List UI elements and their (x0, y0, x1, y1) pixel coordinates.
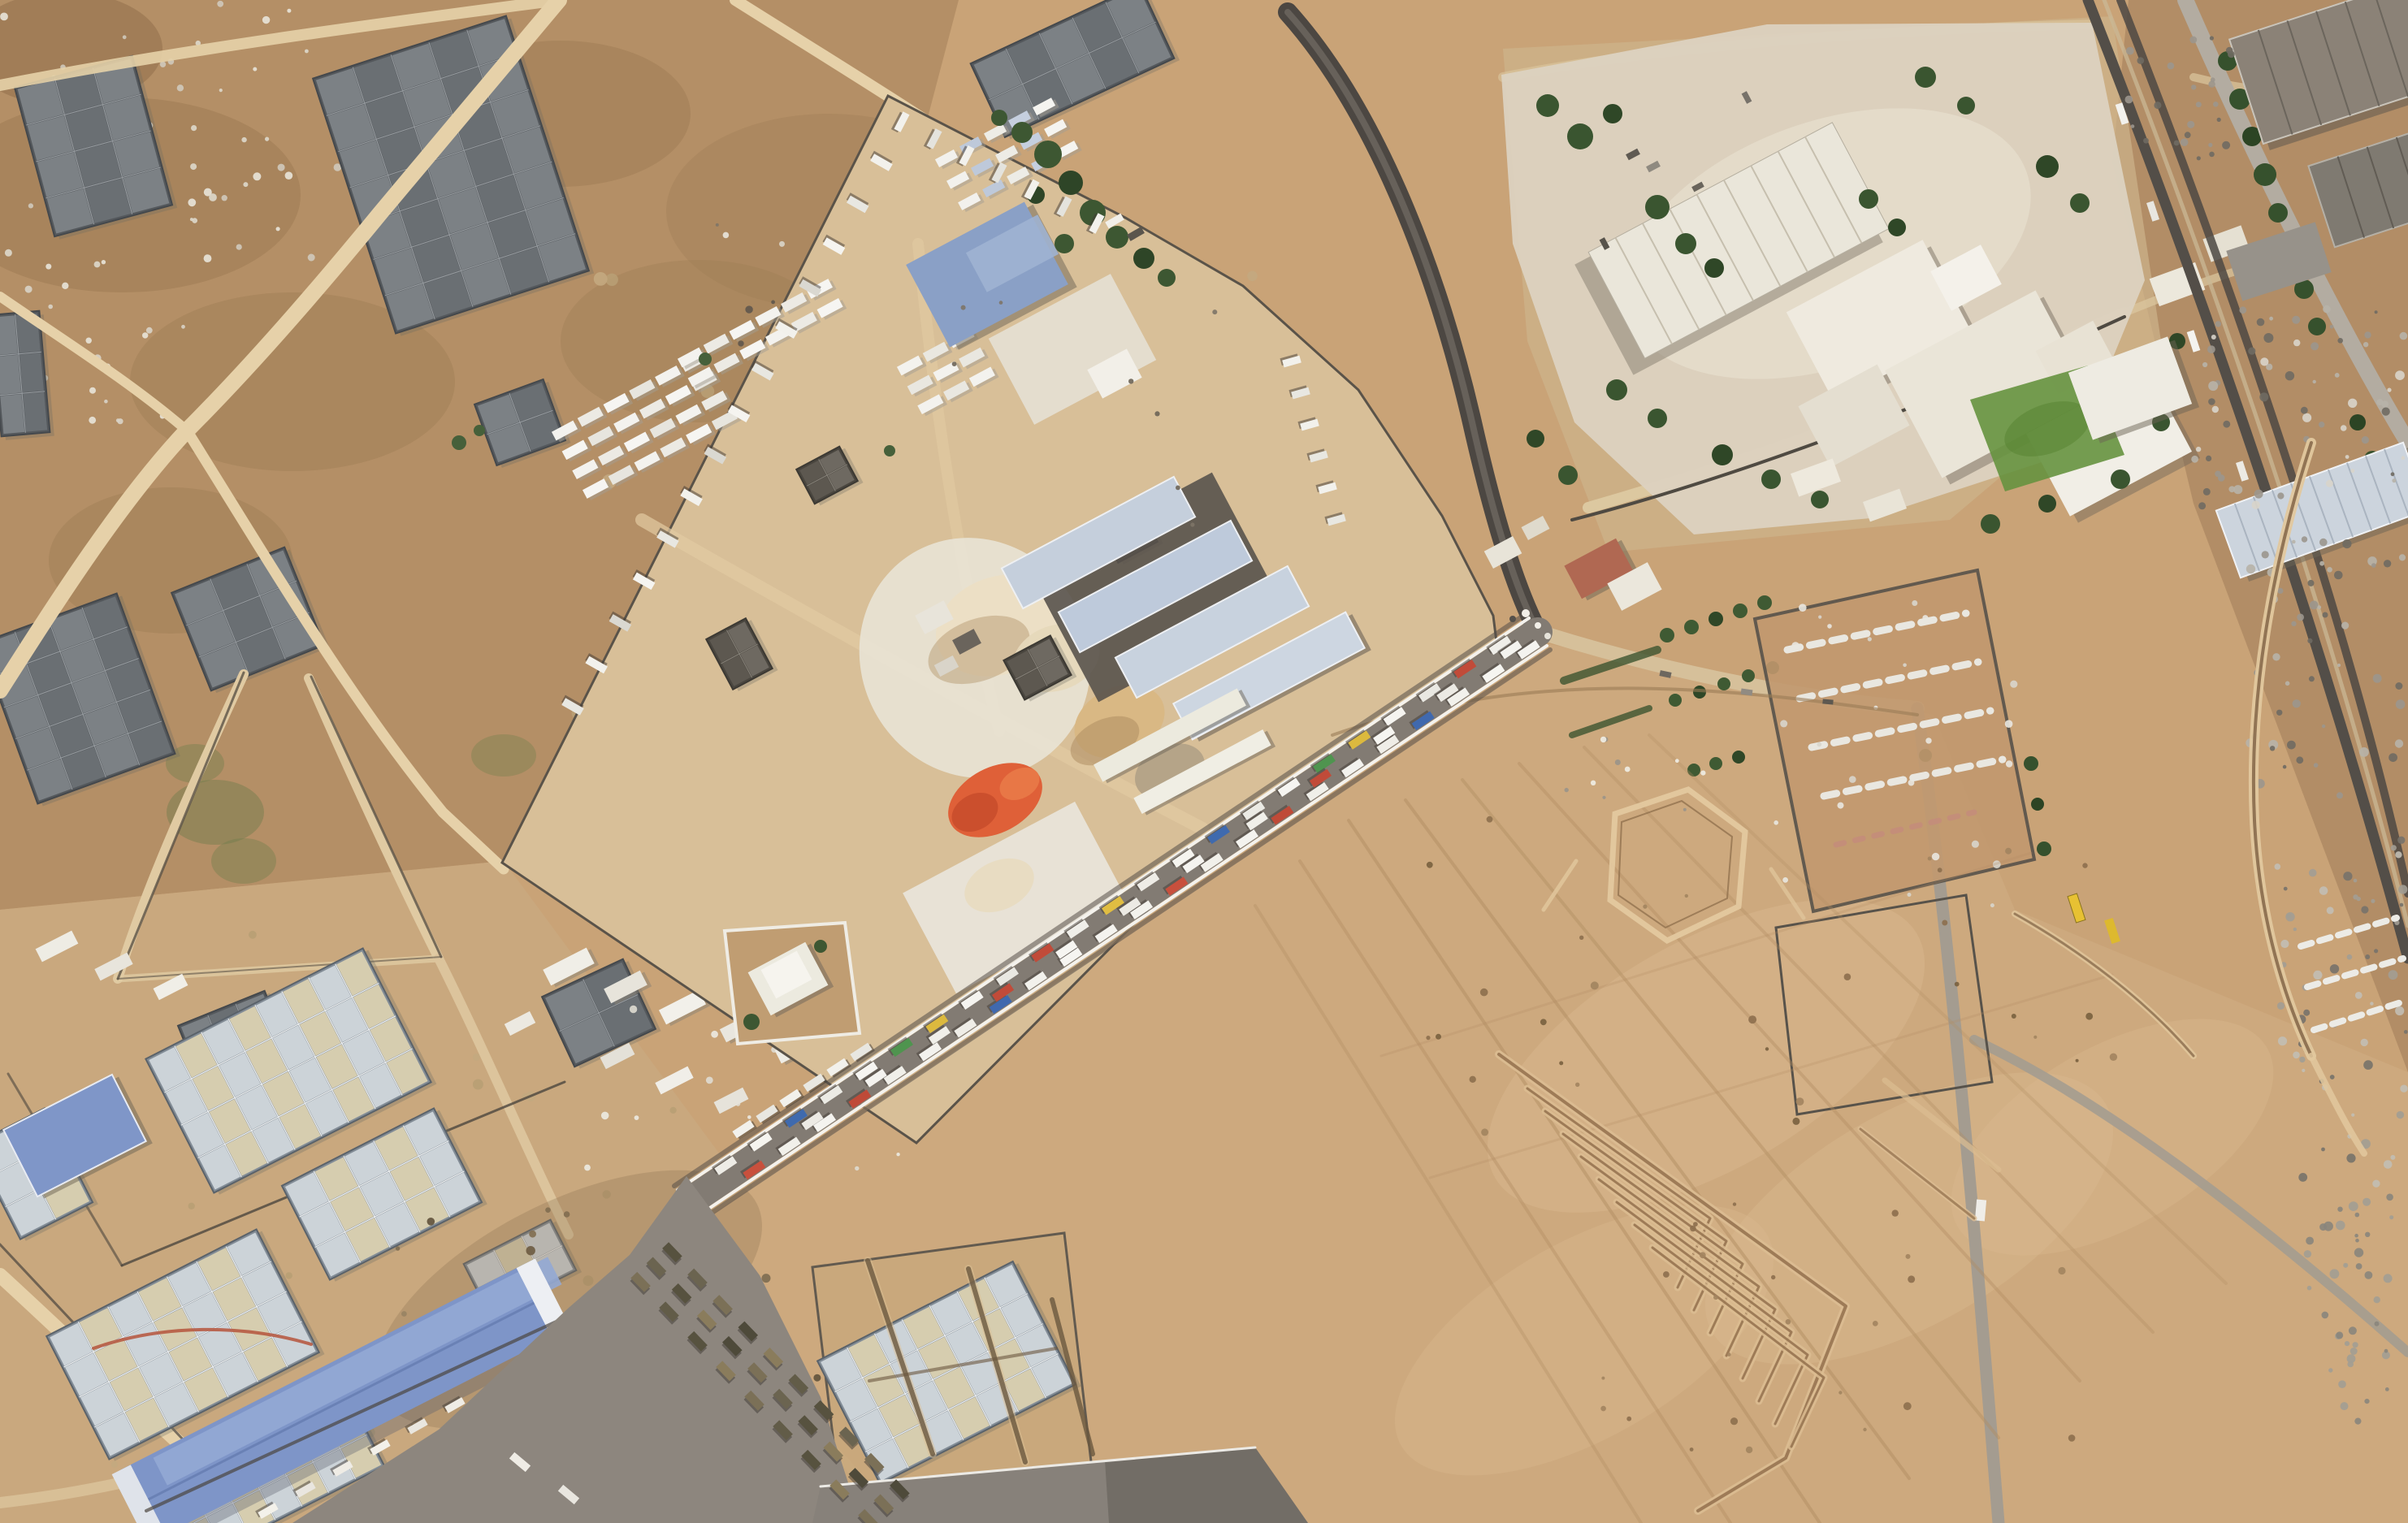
tree (2031, 798, 2044, 811)
tree (2037, 842, 2051, 856)
tree (474, 425, 485, 436)
tree (2038, 495, 2056, 513)
tree (1527, 430, 1544, 448)
tree (1133, 248, 1154, 269)
tree (1567, 123, 1593, 149)
tree (743, 1014, 760, 1030)
orchard-tree (1709, 757, 1722, 770)
tree (1981, 514, 2000, 534)
tree (1558, 465, 1578, 485)
tree (452, 435, 466, 450)
tree (1675, 233, 1696, 254)
tree (1648, 409, 1667, 428)
tree (1915, 67, 1936, 88)
orchard-tree (1669, 694, 1682, 707)
tree (1712, 444, 1733, 465)
satellite-scene (0, 0, 2408, 1523)
tree (2070, 193, 2090, 213)
orchard-tree (1660, 628, 1674, 643)
orchard-tree (1742, 669, 1755, 682)
tree (1761, 469, 1781, 489)
tree (2036, 155, 2059, 178)
tree (1888, 218, 1906, 236)
tree (699, 353, 712, 366)
orchard-tree (1732, 751, 1745, 764)
tree (1606, 379, 1627, 400)
tree (1603, 104, 1622, 123)
orchard-tree (1709, 612, 1723, 626)
tree (1106, 226, 1128, 249)
tree (1034, 141, 1062, 168)
tree (1011, 122, 1033, 143)
gate-marker (1535, 622, 1541, 629)
car (1822, 699, 1833, 704)
tree (884, 445, 895, 456)
tree (1645, 195, 1670, 219)
tree (1059, 171, 1083, 195)
tree (814, 940, 827, 953)
satellite-image-rafah-crossing (0, 0, 2408, 1523)
tree (2268, 203, 2288, 223)
tree (2308, 318, 2326, 335)
orchard-tree (1733, 604, 1748, 618)
tree (2111, 469, 2130, 489)
tree (2350, 414, 2366, 431)
tree (2024, 756, 2038, 771)
tree (1859, 189, 1878, 209)
tree (1704, 258, 1724, 278)
tree (991, 110, 1007, 126)
tree (1957, 97, 1975, 115)
gate-marker (1522, 609, 1530, 617)
orchard-tree (1757, 595, 1772, 610)
orchard-tree (1717, 677, 1730, 690)
gate-marker (1544, 633, 1551, 639)
tree (1055, 234, 1074, 253)
tree (1811, 491, 1829, 508)
orchard-tree (1684, 620, 1699, 634)
tree (1158, 269, 1176, 287)
tree (1536, 94, 1559, 117)
tree (2254, 163, 2276, 186)
